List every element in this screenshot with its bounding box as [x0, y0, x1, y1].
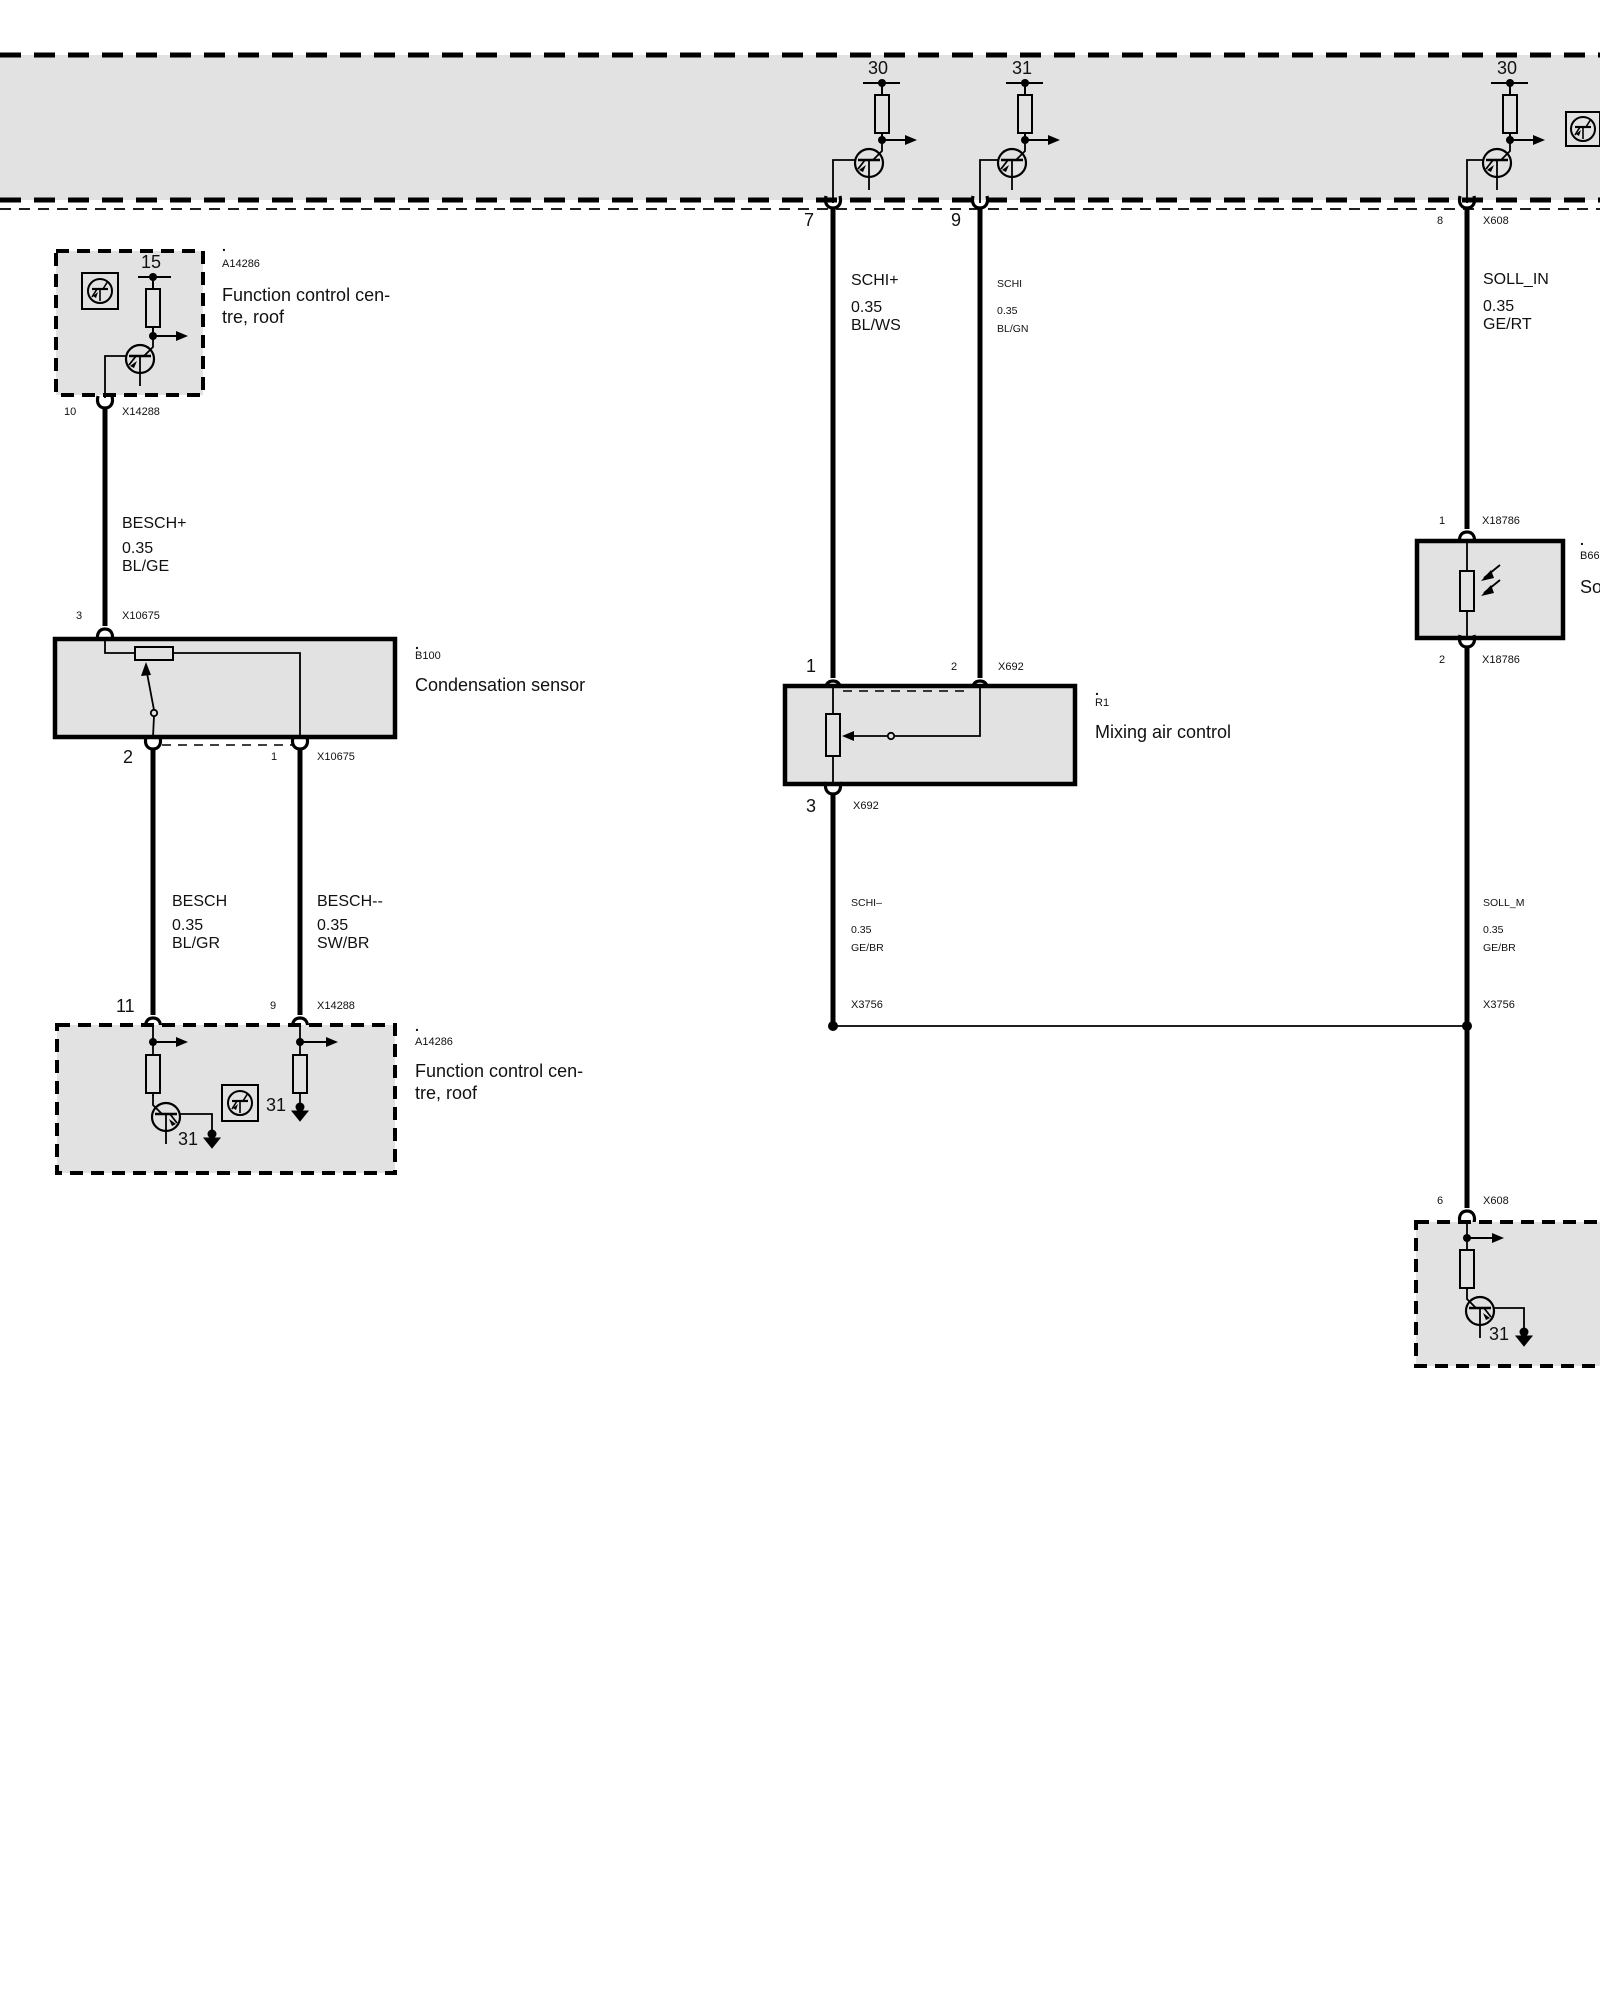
- connector-x18786-top-label: X18786: [1482, 515, 1520, 528]
- wire-besch-plus-name: BESCH+: [122, 515, 186, 534]
- cond-name: Condensation sensor: [415, 674, 585, 696]
- mixing-air-control-box: [785, 686, 1075, 784]
- pin6-label: 6: [1437, 1195, 1443, 1208]
- connector-x10675-top-label: X10675: [122, 610, 160, 623]
- mix-pin1-label: 1: [806, 656, 816, 677]
- wire-besch-minus-name: BESCH--: [317, 893, 383, 912]
- wire-besch-name: BESCH: [172, 893, 227, 912]
- mix-pin2-label: 2: [951, 661, 957, 674]
- mix-name: Mixing air control: [1095, 721, 1231, 743]
- wire-besch-minus-color: SW/BR: [317, 935, 369, 954]
- wiper-contact-dot: [151, 710, 157, 716]
- solar-sensor-box: [1417, 541, 1563, 638]
- connector-x692-bottom-label: X692: [853, 800, 879, 813]
- solar-pin2-label: 2: [1439, 654, 1445, 667]
- wire-besch-gauge: 0.35: [172, 917, 203, 936]
- mix-ref-r1: R1: [1095, 697, 1109, 710]
- fcc-bot-title: Function control cen- tre, roof: [415, 1060, 635, 1104]
- fuse-30-right-label: 30: [1497, 58, 1517, 79]
- cond-pin2-label: 2: [123, 747, 133, 768]
- wire-schi-gauge: 0.35: [997, 305, 1017, 317]
- connector-x14288-top-label: X14288: [122, 406, 160, 419]
- fcc-bottom-dashed-outline: [57, 1025, 395, 1173]
- connector-x18786-bottom-label: X18786: [1482, 654, 1520, 667]
- cond-pin1-label: 1: [271, 751, 277, 764]
- wire-schi-minus-color: GE/BR: [851, 942, 884, 954]
- splice-x3756-left-label: X3756: [851, 999, 883, 1012]
- connector-x692-top-label: X692: [998, 661, 1024, 674]
- solar-ref-b66: B66: [1580, 550, 1600, 563]
- fcc-bot-pin9-label: 9: [270, 1000, 276, 1013]
- fcc-bot-ref: A14286: [415, 1036, 453, 1049]
- fcc-top-pin10-label: 10: [64, 406, 76, 419]
- band-pin7-label: 7: [804, 210, 814, 231]
- connector-x608-bottom-label: X608: [1483, 1195, 1509, 1208]
- wire-soll-in-color: GE/RT: [1483, 316, 1532, 335]
- fcc-top-pin15-label: 15: [141, 252, 161, 273]
- fcc-top-dashed-outline: [56, 251, 203, 395]
- fuse-31-label: 31: [1012, 58, 1032, 79]
- wire-soll-m-gauge: 0.35: [1483, 924, 1503, 936]
- wire-besch-plus-color: BL/GE: [122, 558, 169, 577]
- fcc-bottom-box: [57, 1025, 395, 1173]
- bottom-right-gnd31-label: 31: [1489, 1324, 1509, 1345]
- connector-x10675-bottom-label: X10675: [317, 751, 355, 764]
- solar-pin1-label: 1: [1439, 515, 1445, 528]
- wire-schi-minus-gauge: 0.35: [851, 924, 871, 936]
- wire-besch-minus-gauge: 0.35: [317, 917, 348, 936]
- footnote-dot: .: [415, 1018, 419, 1035]
- wiper-contact-dot: [888, 733, 894, 739]
- wire-schi-minus-name: SCHI–: [851, 897, 882, 909]
- fcc-top-ref: A14286: [222, 258, 260, 271]
- wire-schi-color: BL/GN: [997, 323, 1029, 335]
- wire-besch-plus-gauge: 0.35: [122, 540, 153, 559]
- wire-soll-m-name: SOLL_M: [1483, 897, 1524, 909]
- fcc-bot-pin11-label: 11: [116, 996, 135, 1017]
- mixing-air-control-outline: [785, 686, 1075, 784]
- cond-ref-b100: B100: [415, 650, 441, 663]
- mix-pin3-label: 3: [806, 796, 816, 817]
- fcc-bot-gnd31-label: 31: [178, 1129, 198, 1150]
- band-pin9-label: 9: [951, 210, 961, 231]
- splice-x3756-right-label: X3756: [1483, 999, 1515, 1012]
- band-pin8-label: 8: [1437, 215, 1443, 228]
- wiring-diagram-page: 30 31 30 15 . A14286 Function control ce…: [0, 0, 1600, 2000]
- wire-besch-color: BL/GR: [172, 935, 220, 954]
- wire-soll-in-gauge: 0.35: [1483, 298, 1514, 317]
- connector-x608-top-label: X608: [1483, 215, 1509, 228]
- wire-schi-plus-name: SCHI+: [851, 272, 899, 291]
- wire-schi-plus-gauge: 0.35: [851, 299, 882, 318]
- wire-schi-name: SCHI: [997, 278, 1022, 290]
- solar-name-partial: So: [1580, 576, 1600, 598]
- fuse-30-left-label: 30: [868, 58, 888, 79]
- footnote-dot: .: [1580, 532, 1584, 549]
- footnote-dot: .: [222, 238, 226, 255]
- fcc-top-title: Function control cen- tre, roof: [222, 284, 442, 328]
- wire-soll-m-color: GE/BR: [1483, 942, 1516, 954]
- wire-schi-plus-color: BL/WS: [851, 317, 901, 336]
- condensation-sensor-box: [55, 639, 395, 737]
- power-rail-band: [0, 55, 1600, 209]
- connector-x14288-bottom-label: X14288: [317, 1000, 355, 1013]
- cond-pin3-label: 3: [76, 610, 82, 623]
- fcc-top-box: [56, 251, 203, 398]
- fcc-bot-icon31-label: 31: [266, 1095, 286, 1116]
- wire-soll-in-name: SOLL_IN: [1483, 271, 1549, 290]
